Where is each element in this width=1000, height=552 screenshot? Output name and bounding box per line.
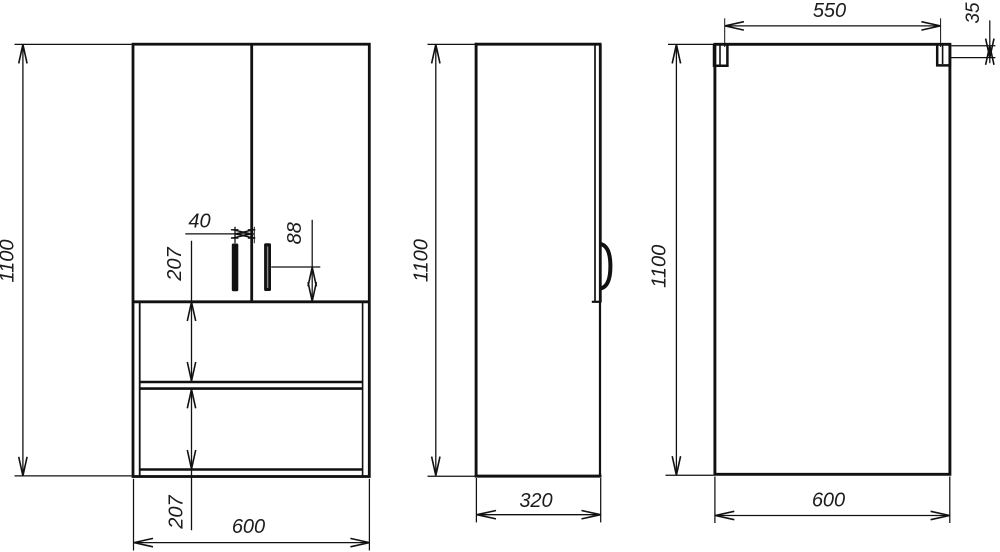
svg-text:88: 88 [284,222,306,244]
svg-text:600: 600 [232,516,265,538]
svg-text:550: 550 [813,0,846,22]
svg-text:40: 40 [188,210,210,232]
svg-text:207: 207 [166,494,188,529]
svg-text:320: 320 [519,490,552,512]
svg-text:1100: 1100 [410,239,432,282]
svg-text:35: 35 [963,2,984,24]
svg-text:1100: 1100 [0,239,19,282]
svg-text:600: 600 [812,490,845,512]
svg-text:1100: 1100 [649,245,671,288]
svg-text:207: 207 [164,246,186,281]
